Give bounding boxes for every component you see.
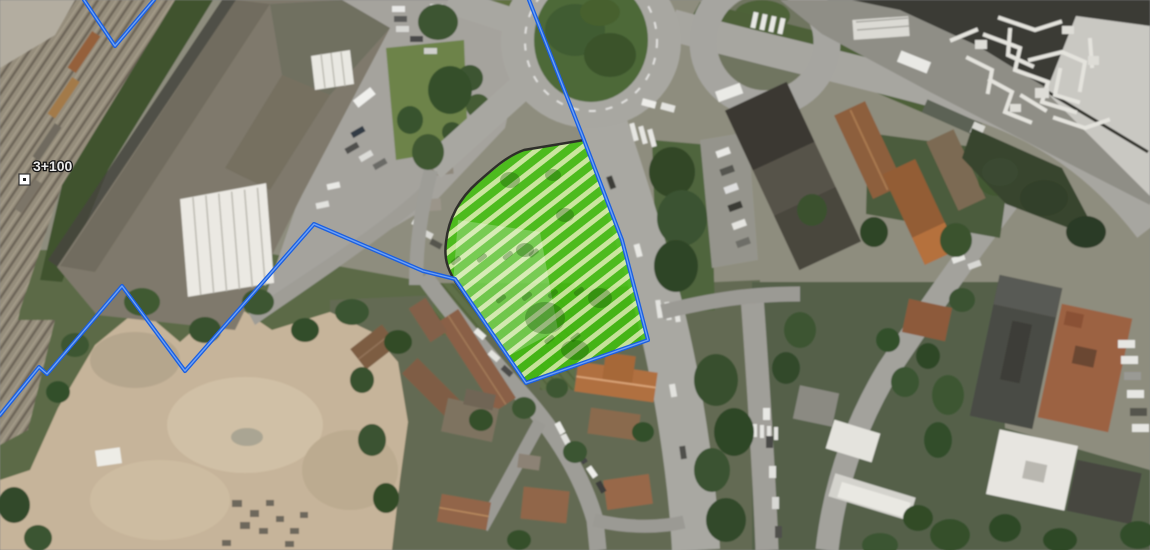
svg-text:3+100: 3+100: [33, 158, 73, 174]
